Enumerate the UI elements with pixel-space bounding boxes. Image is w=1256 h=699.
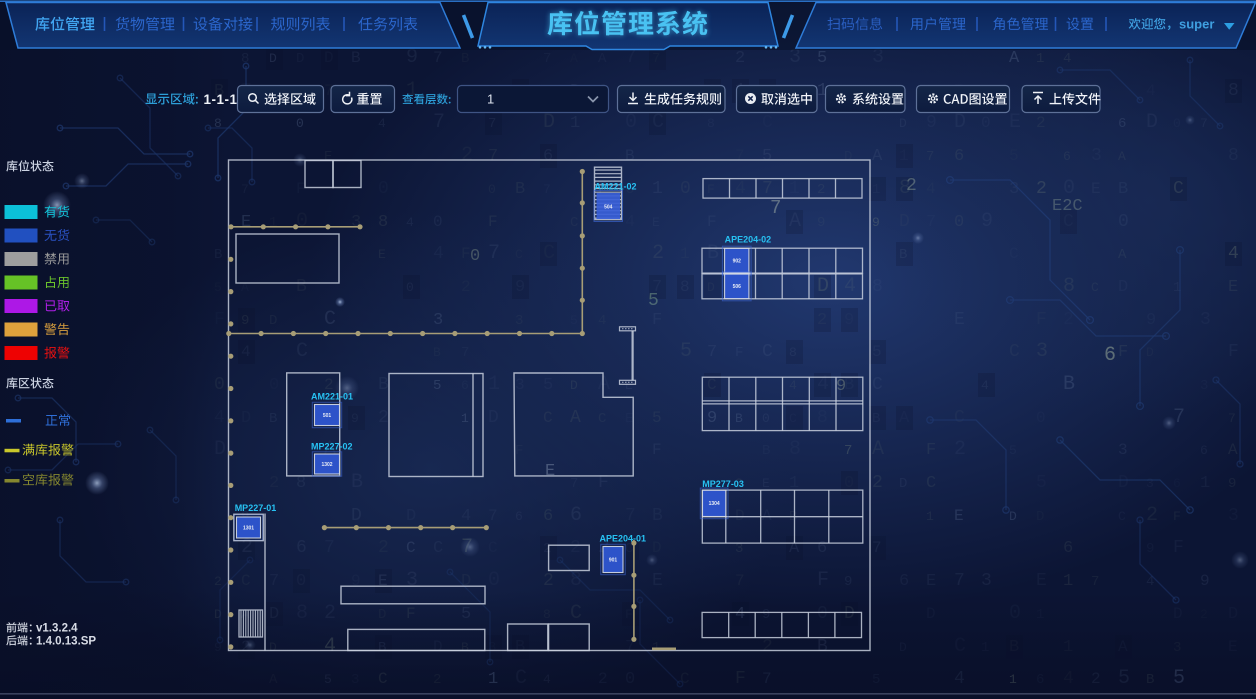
svg-text:C: C	[872, 375, 883, 395]
svg-text:3: 3	[1036, 340, 1048, 363]
svg-text:D: D	[1118, 278, 1128, 297]
svg-text:2: 2	[735, 49, 745, 68]
svg-text:E: E	[954, 310, 965, 330]
svg-text:1: 1	[269, 215, 277, 231]
svg-text:2: 2	[269, 474, 279, 493]
svg-text:D: D	[735, 507, 745, 525]
svg-text:C: C	[378, 670, 388, 688]
svg-text:F: F	[926, 441, 936, 460]
svg-text:0: 0	[296, 210, 308, 233]
svg-text:E: E	[1228, 638, 1238, 656]
svg-text:0: 0	[981, 114, 991, 132]
svg-text:F: F	[707, 213, 717, 231]
svg-text:0: 0	[214, 375, 225, 395]
svg-text:2: 2	[1146, 504, 1158, 527]
svg-text:6: 6	[1173, 476, 1181, 491]
svg-text:7: 7	[844, 443, 852, 459]
svg-text:8: 8	[1228, 146, 1239, 166]
svg-text:5: 5	[872, 672, 880, 688]
svg-text:5: 5	[652, 409, 662, 427]
svg-text:1: 1	[1009, 672, 1017, 687]
svg-text:6: 6	[1200, 443, 1208, 458]
svg-text:A: A	[1009, 49, 1020, 68]
svg-text:4: 4	[735, 605, 745, 624]
svg-text:A: A	[762, 507, 772, 525]
svg-text:4: 4	[981, 378, 989, 393]
svg-text:2: 2	[324, 602, 336, 625]
svg-text:F: F	[515, 443, 523, 459]
svg-text:5: 5	[648, 291, 659, 311]
svg-text:1: 1	[461, 411, 469, 426]
svg-text:B: B	[461, 640, 469, 655]
svg-text:D: D	[324, 49, 334, 67]
svg-text:2: 2	[598, 670, 608, 688]
svg-text:C: C	[324, 308, 336, 331]
svg-text:F: F	[1173, 538, 1184, 558]
svg-text:4: 4	[954, 669, 965, 689]
svg-text:9: 9	[707, 409, 717, 428]
svg-text:6: 6	[570, 504, 582, 527]
svg-text:A: A	[872, 438, 884, 461]
svg-text:E: E	[1036, 571, 1047, 591]
svg-text:F: F	[1228, 342, 1239, 362]
svg-text:3: 3	[406, 569, 418, 592]
svg-text:A: A	[269, 672, 278, 688]
svg-text:8: 8	[680, 278, 690, 296]
svg-text:7: 7	[770, 197, 781, 219]
svg-text:0: 0	[625, 111, 637, 134]
svg-text:0: 0	[1036, 409, 1046, 427]
svg-text:D: D	[926, 605, 936, 623]
svg-text:6: 6	[817, 539, 827, 558]
svg-text:1: 1	[1200, 474, 1210, 493]
svg-text:5: 5	[1009, 147, 1019, 165]
svg-text:1: 1	[487, 92, 494, 107]
svg-text:4: 4	[625, 213, 635, 232]
svg-text:9: 9	[1200, 572, 1210, 590]
svg-text:C: C	[762, 113, 773, 133]
svg-text:C: C	[926, 474, 936, 493]
svg-text:B: B	[351, 49, 361, 67]
svg-text:2: 2	[954, 438, 966, 461]
svg-text:2: 2	[1036, 179, 1047, 199]
svg-text:2: 2	[1036, 114, 1046, 132]
svg-text:E: E	[1228, 278, 1238, 297]
svg-text:AM221-02: AM221-02	[595, 182, 637, 192]
svg-text:8: 8	[296, 474, 306, 493]
svg-text:9: 9	[872, 215, 880, 230]
svg-text:A: A	[241, 280, 249, 295]
svg-text:6: 6	[1063, 539, 1073, 558]
svg-text:1304: 1304	[709, 501, 720, 507]
svg-text:6: 6	[515, 509, 523, 524]
svg-text:B: B	[214, 247, 222, 263]
svg-text:5: 5	[214, 280, 222, 295]
svg-text:9: 9	[515, 278, 525, 297]
svg-text:2: 2	[214, 574, 222, 589]
svg-text:4: 4	[1228, 244, 1239, 264]
svg-text:B: B	[762, 443, 770, 459]
svg-text:3: 3	[1200, 310, 1211, 330]
svg-text:5: 5	[762, 147, 772, 166]
svg-text:7: 7	[762, 179, 773, 199]
svg-text:5: 5	[1118, 667, 1130, 690]
svg-text:D: D	[1118, 473, 1129, 493]
svg-text:C: C	[1009, 245, 1019, 263]
svg-text:2: 2	[433, 672, 441, 688]
svg-text:2: 2	[762, 637, 773, 657]
svg-text:D: D	[214, 438, 226, 461]
svg-text:6: 6	[1063, 149, 1071, 164]
svg-text:C: C	[1173, 179, 1184, 199]
svg-text:F: F	[817, 569, 829, 592]
svg-text:E: E	[652, 571, 663, 591]
svg-text:D: D	[1146, 345, 1154, 360]
svg-text:C: C	[1091, 280, 1099, 295]
svg-text:D: D	[269, 605, 279, 624]
svg-text:5: 5	[1036, 473, 1047, 493]
svg-text:4: 4	[817, 373, 829, 396]
svg-text:A: A	[789, 210, 801, 233]
svg-text:7: 7	[652, 51, 660, 67]
svg-text:1: 1	[981, 640, 989, 656]
svg-text:D: D	[406, 507, 416, 526]
svg-text:9: 9	[351, 572, 361, 590]
svg-text:6: 6	[1036, 672, 1044, 688]
svg-text:3: 3	[1228, 506, 1239, 526]
svg-text:2: 2	[241, 536, 253, 559]
svg-text:C: C	[433, 539, 443, 558]
svg-text:8: 8	[872, 277, 883, 297]
svg-text:B: B	[378, 640, 386, 656]
svg-text:B: B	[296, 277, 307, 297]
svg-text:4: 4	[241, 343, 251, 361]
svg-text:D: D	[1036, 509, 1044, 525]
svg-text:2: 2	[817, 182, 825, 198]
svg-text:C: C	[680, 670, 690, 688]
svg-text:MP227-02: MP227-02	[311, 442, 353, 452]
svg-text:D: D	[269, 640, 277, 655]
svg-text:7: 7	[735, 147, 745, 165]
svg-text:8: 8	[543, 607, 551, 622]
svg-text:4: 4	[598, 313, 606, 329]
svg-text:7: 7	[926, 149, 934, 165]
svg-text:0: 0	[378, 179, 389, 199]
svg-text:D: D	[1146, 111, 1158, 134]
svg-text:7: 7	[543, 182, 551, 197]
svg-text:B: B	[515, 180, 525, 199]
svg-text:506: 506	[733, 284, 742, 290]
svg-text:C: C	[1118, 509, 1126, 524]
svg-text:3: 3	[1200, 378, 1208, 394]
svg-text:B: B	[735, 411, 743, 426]
svg-text:v1.3.2.4: v1.3.2.4	[36, 623, 78, 635]
svg-text:E: E	[1009, 111, 1021, 134]
svg-text:B: B	[625, 147, 635, 165]
svg-text:8: 8	[707, 116, 715, 131]
svg-text:F: F	[406, 605, 416, 623]
svg-text:1: 1	[570, 114, 580, 133]
svg-text:7: 7	[762, 670, 772, 688]
svg-text:B: B	[351, 471, 363, 494]
svg-text:B: B	[872, 411, 880, 427]
svg-text:7: 7	[433, 111, 445, 134]
svg-text:D: D	[296, 51, 304, 67]
svg-text:1-1-1: 1-1-1	[204, 92, 238, 107]
svg-text:D: D	[844, 149, 852, 165]
svg-text:0: 0	[296, 572, 306, 591]
svg-text:F: F	[652, 441, 662, 459]
svg-text:D: D	[488, 408, 499, 428]
svg-text:0: 0	[406, 280, 414, 295]
svg-text:B: B	[515, 638, 525, 657]
svg-text:1: 1	[789, 179, 800, 199]
svg-text:3: 3	[488, 640, 496, 656]
svg-text:A: A	[1118, 638, 1128, 656]
svg-text:4: 4	[433, 244, 444, 264]
svg-text:9: 9	[1146, 311, 1156, 330]
svg-text:7: 7	[1091, 574, 1099, 590]
svg-text:D: D	[899, 476, 907, 492]
svg-text:1: 1	[1063, 572, 1073, 591]
svg-text:1: 1	[899, 147, 909, 165]
svg-text:E: E	[324, 149, 332, 165]
svg-text:5: 5	[817, 49, 827, 68]
svg-text:9: 9	[836, 377, 846, 396]
svg-text:C: C	[570, 215, 578, 231]
svg-text:2: 2	[872, 473, 883, 493]
svg-text:C: C	[570, 602, 582, 625]
svg-text:2: 2	[1200, 607, 1208, 622]
svg-text:8: 8	[1228, 81, 1239, 101]
svg-text:C: C	[652, 111, 664, 134]
svg-text:D: D	[570, 378, 578, 393]
svg-text:C: C	[515, 247, 523, 262]
svg-text:7: 7	[954, 571, 965, 591]
svg-text:2: 2	[543, 541, 551, 557]
svg-text:D: D	[241, 409, 251, 428]
svg-text:D: D	[269, 51, 277, 66]
svg-text:MP227-01: MP227-01	[235, 503, 277, 513]
svg-text:4: 4	[844, 275, 856, 298]
svg-text:0: 0	[817, 604, 828, 624]
svg-text:4: 4	[406, 215, 414, 230]
svg-text:4: 4	[214, 408, 225, 428]
svg-text:2: 2	[378, 538, 389, 558]
svg-text:APE204-02: APE204-02	[725, 235, 772, 245]
svg-text:D: D	[351, 506, 362, 526]
svg-text:E: E	[625, 411, 633, 427]
svg-text:5: 5	[1009, 443, 1017, 458]
svg-text:1.4.0.13.SP: 1.4.0.13.SP	[36, 636, 96, 648]
svg-text:7: 7	[735, 572, 745, 590]
svg-text:501: 501	[323, 413, 332, 419]
svg-text:B: B	[652, 506, 663, 526]
svg-text:D: D	[214, 607, 222, 622]
svg-text:MP277-03: MP277-03	[702, 479, 744, 489]
svg-text:C: C	[1009, 342, 1020, 362]
svg-text:9: 9	[351, 411, 359, 426]
svg-text:7: 7	[707, 343, 717, 362]
svg-text:AM221-01: AM221-01	[311, 392, 353, 402]
svg-text:D: D	[817, 275, 829, 298]
svg-text:7: 7	[461, 345, 469, 361]
svg-text:0: 0	[1173, 116, 1181, 131]
svg-text:4: 4	[1063, 669, 1074, 689]
svg-text:B: B	[707, 242, 719, 265]
svg-text:D: D	[1173, 605, 1183, 623]
svg-text:6: 6	[461, 378, 469, 393]
svg-text:9: 9	[844, 574, 852, 590]
svg-text:B: B	[1009, 638, 1019, 657]
svg-text:A: A	[1228, 441, 1238, 459]
svg-text:D: D	[844, 604, 855, 624]
svg-text:D: D	[707, 280, 715, 295]
svg-text:B: B	[433, 345, 441, 360]
svg-text:3: 3	[433, 311, 443, 330]
svg-text:A: A	[872, 147, 883, 166]
svg-text:8: 8	[789, 345, 797, 360]
svg-text:APE204-01: APE204-01	[600, 534, 647, 544]
svg-text:C: C	[789, 411, 797, 426]
svg-text:1: 1	[872, 182, 880, 198]
svg-text:7: 7	[1200, 116, 1208, 131]
svg-text:5: 5	[872, 343, 882, 361]
svg-text:C: C	[406, 539, 416, 557]
svg-text:F: F	[707, 182, 715, 197]
svg-text:E: E	[954, 507, 964, 525]
svg-text:C: C	[707, 376, 717, 394]
svg-text:4: 4	[1146, 82, 1156, 100]
svg-text:6: 6	[543, 507, 553, 526]
svg-text:7: 7	[488, 116, 496, 132]
svg-text:1: 1	[680, 245, 690, 263]
svg-text:F: F	[296, 180, 306, 198]
svg-text:E: E	[378, 572, 388, 590]
svg-text:7: 7	[488, 147, 498, 166]
svg-text:F: F	[488, 213, 498, 231]
svg-text:D: D	[269, 313, 277, 329]
svg-text:D: D	[899, 212, 910, 232]
svg-text:D: D	[954, 111, 966, 134]
svg-text:504: 504	[604, 204, 613, 210]
svg-text:7: 7	[269, 572, 279, 591]
svg-text:6: 6	[899, 572, 909, 591]
svg-text:B: B	[1146, 672, 1154, 688]
svg-text:6: 6	[296, 538, 307, 558]
svg-text:5: 5	[433, 378, 441, 394]
svg-text:5: 5	[461, 605, 471, 624]
svg-text:6: 6	[543, 147, 553, 166]
svg-text:3: 3	[1009, 180, 1019, 199]
svg-text:1301: 1301	[243, 525, 254, 531]
svg-text:F: F	[735, 345, 743, 361]
svg-text:0: 0	[1009, 602, 1021, 625]
svg-text:4: 4	[543, 672, 551, 687]
svg-text:A: A	[570, 408, 581, 428]
svg-text:E: E	[762, 476, 770, 491]
svg-text:3: 3	[515, 313, 523, 329]
svg-text:8: 8	[378, 213, 388, 232]
svg-text:9: 9	[1228, 476, 1236, 492]
svg-text:6: 6	[1104, 344, 1116, 367]
svg-text:8: 8	[789, 438, 801, 461]
svg-text:7: 7	[433, 49, 443, 67]
svg-text:C: C	[241, 572, 251, 590]
svg-text:B: B	[1118, 180, 1128, 199]
svg-text:7: 7	[324, 538, 335, 558]
svg-text:2: 2	[570, 538, 581, 558]
svg-text:E: E	[545, 462, 555, 481]
svg-text:E2C: E2C	[1052, 197, 1083, 216]
svg-text:901: 901	[609, 557, 618, 563]
svg-text:E: E	[378, 247, 386, 262]
svg-text:B: B	[1063, 373, 1075, 396]
svg-text:9: 9	[844, 311, 854, 330]
svg-text:1: 1	[1036, 51, 1044, 67]
svg-text:1: 1	[1036, 607, 1044, 623]
svg-text:7: 7	[1228, 411, 1236, 426]
svg-text:4: 4	[461, 507, 471, 526]
svg-text:9: 9	[241, 313, 249, 329]
svg-text:E: E	[1091, 180, 1101, 198]
svg-text:F: F	[735, 669, 746, 689]
svg-text:5: 5	[570, 313, 578, 328]
svg-text:9: 9	[762, 607, 770, 623]
svg-text:D: D	[433, 638, 443, 656]
svg-text:A: A	[899, 409, 910, 428]
svg-text:7: 7	[488, 242, 500, 265]
svg-text:4: 4	[1063, 51, 1071, 67]
svg-text:7: 7	[625, 506, 636, 526]
svg-text:F: F	[625, 607, 633, 622]
svg-text:0: 0	[488, 569, 500, 592]
svg-text:E: E	[926, 572, 936, 591]
svg-text:6: 6	[1118, 116, 1126, 132]
svg-text:5: 5	[324, 672, 332, 687]
svg-text:0: 0	[762, 411, 770, 426]
svg-text:super: super	[1179, 17, 1214, 32]
svg-text:C: C	[954, 635, 966, 658]
svg-text:B: B	[269, 411, 277, 427]
svg-text:1: 1	[1063, 638, 1073, 657]
svg-text:1: 1	[926, 509, 934, 524]
svg-text:2: 2	[652, 242, 664, 265]
svg-text:B: B	[378, 375, 389, 395]
svg-text:3: 3	[1146, 476, 1154, 491]
svg-text:3: 3	[515, 376, 525, 394]
svg-text:7: 7	[926, 213, 936, 232]
svg-text:0: 0	[488, 182, 496, 197]
svg-text:E: E	[241, 213, 251, 232]
svg-text:F: F	[1118, 343, 1128, 362]
svg-text:902: 902	[733, 258, 742, 264]
svg-text:A: A	[1118, 149, 1126, 164]
svg-text:3: 3	[981, 571, 992, 591]
svg-text:F: F	[214, 310, 225, 330]
svg-text:7: 7	[543, 51, 551, 67]
svg-text:0: 0	[296, 116, 304, 131]
svg-text:5: 5	[680, 340, 692, 363]
svg-text:0: 0	[625, 670, 635, 689]
svg-text:0: 0	[680, 179, 691, 199]
svg-text:F: F	[1036, 310, 1047, 330]
svg-text:4: 4	[789, 378, 797, 393]
svg-text:5: 5	[543, 376, 553, 395]
svg-text:A: A	[598, 373, 610, 396]
svg-text:0: 0	[269, 376, 279, 395]
svg-text:D: D	[899, 116, 907, 131]
